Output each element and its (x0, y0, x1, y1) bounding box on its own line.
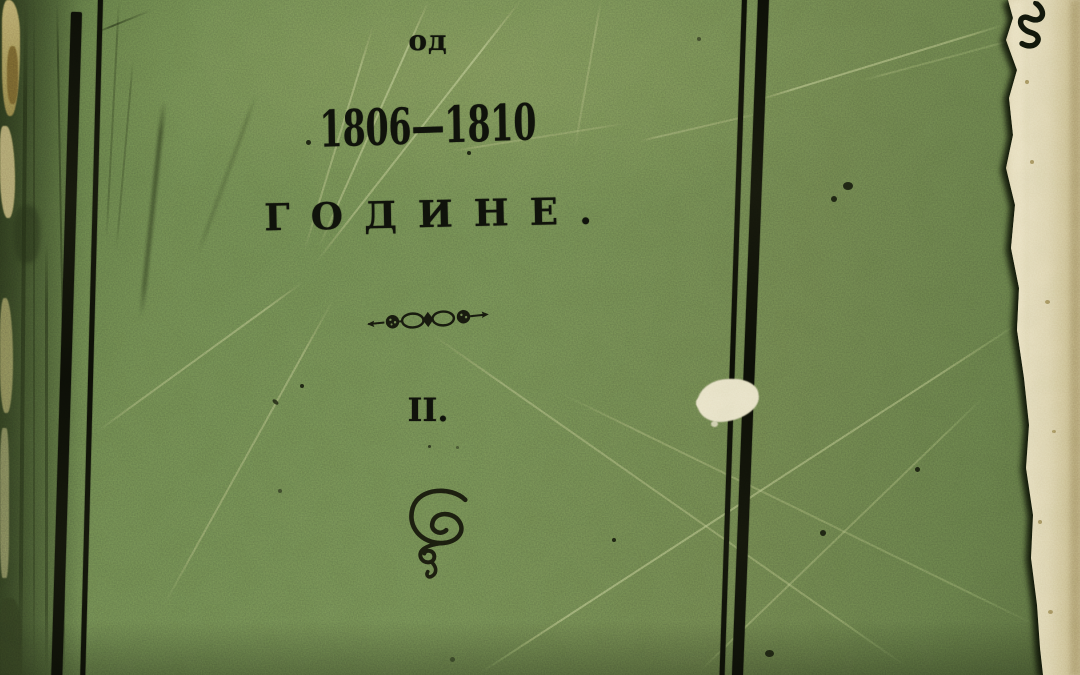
ink-speck (831, 196, 837, 202)
ink-speck (697, 37, 701, 41)
spine-wear-patch (7, 46, 18, 104)
paper-speck (1030, 160, 1034, 164)
torn-paper-edge (1000, 0, 1080, 675)
ink-speck (820, 530, 826, 536)
ink-speck (428, 445, 431, 448)
ink-speck (843, 182, 853, 190)
year-range-text: 1806—1810 (205, 88, 652, 162)
torn-edge-curl-icon (998, 0, 1054, 63)
volume-numeral-text: II. (90, 391, 766, 429)
spine-dark-blotch (14, 205, 40, 263)
ink-speck (306, 140, 311, 145)
ink-speck (612, 538, 616, 542)
paper-speck (1025, 80, 1029, 84)
paper-edge-shading (1070, 0, 1080, 675)
title-text: ГОДИНЕ. (90, 185, 767, 243)
ink-speck (456, 446, 459, 449)
ink-speck (915, 467, 920, 472)
book-cover-scan: од 1806—1810 ГОДИНЕ. (0, 0, 1080, 675)
title-block: од 1806—1810 ГОДИНЕ. (90, 0, 766, 675)
ink-speck (450, 657, 455, 662)
ink-speck (300, 384, 304, 388)
ink-speck (467, 151, 471, 155)
ink-speck (765, 650, 774, 657)
paper-speck (1038, 520, 1042, 524)
preposition-text: од (90, 24, 766, 57)
paper-speck (1052, 430, 1056, 433)
paper-speck (1045, 300, 1050, 304)
ink-speck (278, 489, 282, 493)
white-damage-patch (711, 421, 718, 427)
white-damage-patch (696, 396, 712, 410)
spine-wear-patch (0, 598, 22, 675)
pen-flourish-icon (101, 476, 780, 596)
spine-wear-patch (0, 428, 9, 578)
divider-ornament-icon (90, 294, 767, 345)
torn-paper-surface (1000, 0, 1080, 675)
paper-speck (1048, 610, 1053, 614)
paper-fiber-highlight (1008, 0, 1024, 675)
